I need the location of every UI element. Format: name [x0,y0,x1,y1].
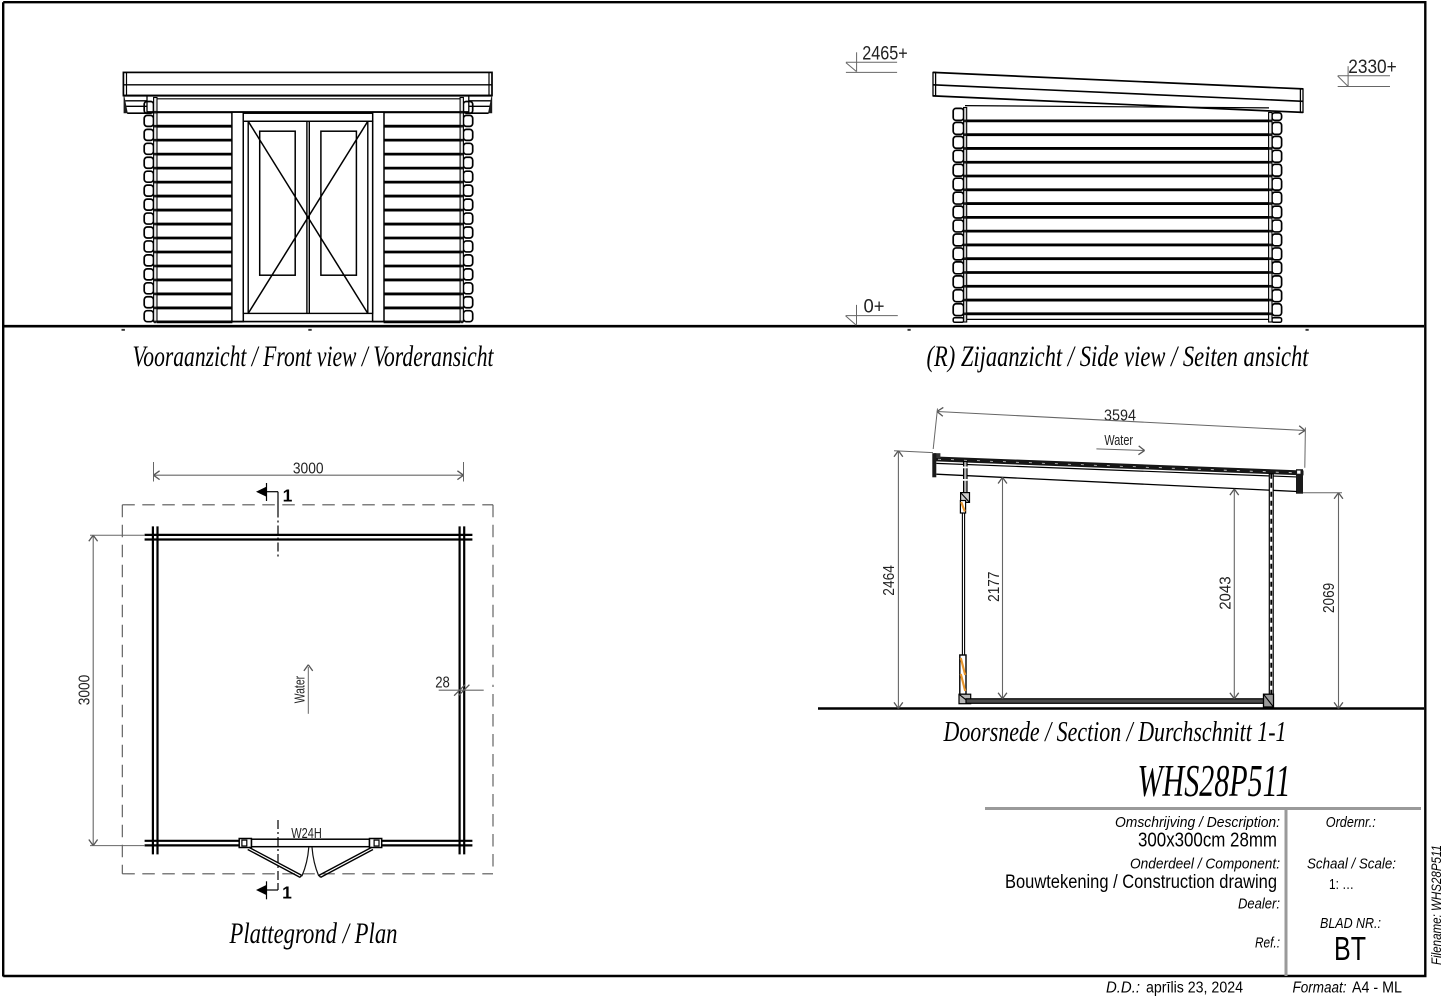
svg-text:A4 - ML: A4 - ML [1352,979,1402,996]
svg-text:aprīlis 23, 2024: aprīlis 23, 2024 [1146,979,1243,996]
svg-text:Vooraanzicht / Front view / Vo: Vooraanzicht / Front view / Vorderansich… [133,340,494,373]
svg-text:2465+: 2465+ [862,43,908,65]
svg-text:300x300cm 28mm: 300x300cm 28mm [1138,830,1277,852]
svg-text:Dealer:: Dealer: [1238,897,1280,913]
svg-text:2464: 2464 [881,565,898,596]
svg-text:WHS28P511: WHS28P511 [1138,756,1291,806]
svg-text:Bouwtekening / Construction dr: Bouwtekening / Construction drawing [1005,871,1277,893]
svg-text:2330+: 2330+ [1348,56,1397,78]
svg-text:Plattegrond / Plan: Plattegrond / Plan [229,917,398,950]
svg-text:0+: 0+ [864,296,885,318]
svg-text:Filename: WHS28P511: Filename: WHS28P511 [1428,845,1444,965]
svg-text:Ordernr.:: Ordernr.: [1326,815,1376,831]
svg-text:3000: 3000 [76,674,93,705]
svg-text:D.D.:: D.D.: [1106,979,1140,996]
svg-text:2043: 2043 [1218,576,1235,609]
svg-text:Water: Water [1104,432,1133,449]
svg-text:Doorsnede / Section / Durchsch: Doorsnede / Section / Durchschnitt 1-1 [943,716,1287,748]
svg-text:Water: Water [292,676,309,703]
svg-text:Schaal / Scale:: Schaal / Scale: [1307,857,1396,873]
svg-text:1: …: 1: … [1329,876,1354,893]
svg-text:2069: 2069 [1321,583,1338,613]
svg-text:BT: BT [1334,930,1366,967]
svg-text:Formaat:: Formaat: [1293,979,1347,996]
svg-text:28: 28 [435,675,450,692]
svg-text:2177: 2177 [986,572,1003,602]
svg-text:1: 1 [282,882,292,902]
svg-text:1: 1 [283,486,293,506]
svg-text:(R) Zijaanzicht / Side view /: (R) Zijaanzicht / Side view / Seiten ans… [927,340,1309,373]
svg-text:Ref.:: Ref.: [1255,936,1280,952]
